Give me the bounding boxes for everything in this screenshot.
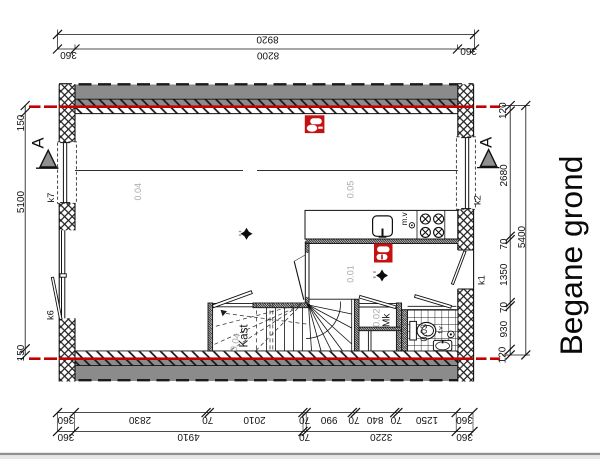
svg-text:360: 360 [57, 431, 74, 442]
svg-text:A: A [478, 137, 496, 148]
svg-text:A: A [30, 137, 48, 148]
svg-text:70: 70 [499, 238, 510, 250]
svg-text:k7: k7 [46, 193, 56, 203]
svg-text:1250: 1250 [415, 414, 438, 425]
svg-text:2830: 2830 [128, 414, 151, 425]
svg-text:4910: 4910 [177, 431, 200, 442]
svg-text:120: 120 [498, 346, 509, 363]
svg-text:m.v: m.v [400, 212, 409, 225]
svg-text:2680: 2680 [499, 164, 510, 187]
svg-text:3220: 3220 [370, 431, 393, 442]
svg-text:360: 360 [57, 414, 74, 425]
svg-text:70: 70 [202, 414, 214, 425]
svg-text:Mk: Mk [382, 313, 393, 327]
svg-text:0.01: 0.01 [346, 265, 356, 283]
svg-text:360: 360 [460, 45, 477, 56]
svg-text:0.03: 0.03 [419, 324, 429, 342]
svg-text:5100: 5100 [16, 190, 27, 213]
svg-text:150: 150 [16, 114, 27, 131]
svg-text:360: 360 [60, 49, 77, 60]
svg-text:360: 360 [456, 414, 473, 425]
svg-text:8200: 8200 [256, 49, 279, 60]
svg-text:1350: 1350 [499, 263, 510, 286]
svg-text:930: 930 [499, 320, 510, 337]
svg-text:8920: 8920 [256, 34, 279, 45]
svg-text:70: 70 [390, 414, 402, 425]
svg-text:2010: 2010 [243, 414, 266, 425]
svg-text:990: 990 [320, 414, 337, 425]
svg-text:0.04: 0.04 [133, 183, 143, 201]
svg-text:360: 360 [456, 431, 473, 442]
svg-text:150: 150 [16, 344, 27, 361]
svg-text:k2: k2 [473, 195, 483, 205]
svg-text:k1: k1 [477, 275, 487, 285]
svg-text:f.v: f.v [438, 326, 445, 334]
svg-text:5400: 5400 [517, 225, 528, 248]
svg-text:120: 120 [498, 102, 509, 119]
svg-text:70: 70 [299, 414, 311, 425]
svg-text:840: 840 [366, 414, 383, 425]
svg-text:70: 70 [299, 431, 311, 442]
svg-text:Begane grond: Begane grond [553, 156, 589, 356]
svg-text:70: 70 [348, 414, 360, 425]
svg-text:k6: k6 [46, 310, 56, 320]
svg-text:70: 70 [499, 302, 510, 314]
svg-text:0.05: 0.05 [345, 181, 355, 199]
